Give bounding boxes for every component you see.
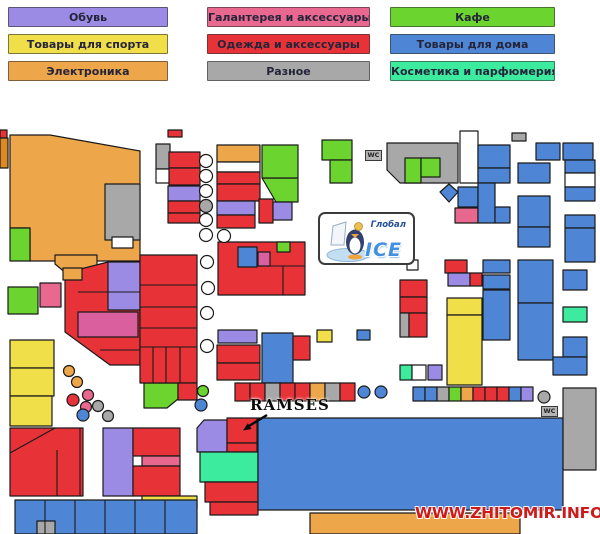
map-store-block (553, 357, 587, 375)
map-store-block (563, 143, 593, 160)
map-kiosk-circle (200, 155, 213, 168)
map-kiosk-circle (218, 230, 231, 243)
map-store-block (483, 275, 510, 289)
map-store-block (217, 201, 255, 215)
map-store-block (518, 260, 553, 303)
map-store-block (455, 208, 478, 223)
map-store-block (168, 130, 182, 137)
map-store-block (563, 337, 587, 357)
mall-logo: Глобал ICE (318, 212, 415, 265)
map-kiosk-circle (67, 394, 79, 406)
map-store-block (478, 183, 495, 223)
map-area (197, 420, 227, 452)
map-store-block (425, 387, 437, 401)
map-store-block (428, 365, 442, 380)
map-store-block (200, 452, 258, 482)
map-store-block (509, 387, 521, 401)
map-store-block (563, 388, 596, 470)
map-area (144, 383, 178, 408)
logo-title: Глобал (371, 220, 406, 230)
map-store-block (37, 521, 55, 534)
map-kiosk-circle (200, 229, 213, 242)
map-store-block (112, 237, 133, 248)
legend-item: Электроника (8, 61, 168, 81)
map-store-block (10, 228, 30, 261)
map-store-block (217, 215, 255, 228)
map-kiosk-circle (358, 386, 370, 398)
map-store-block (217, 162, 260, 172)
map-store-block (40, 283, 61, 307)
logo-subtitle: ICE (365, 239, 402, 261)
map-store-block (210, 502, 258, 515)
map-kiosk-circle (64, 366, 75, 377)
map-store-block (108, 262, 140, 310)
map-store-block (235, 383, 250, 401)
map-store-block (217, 184, 260, 201)
map-kiosk-circle (72, 377, 83, 388)
map-store-block (10, 428, 83, 496)
map-store-block (485, 387, 497, 401)
map-store-block (447, 315, 482, 385)
map-store-block (133, 428, 180, 456)
ramses-annotation: RAMSES (250, 396, 330, 414)
legend-item: Разное (207, 61, 370, 81)
map-store-block (563, 270, 587, 290)
map-store-block (142, 456, 180, 466)
map-store-block (140, 255, 197, 383)
map-store-block (478, 168, 510, 183)
map-store-block (217, 363, 260, 380)
map-store-block (518, 303, 553, 360)
map-store-block (168, 201, 200, 213)
map-store-block (449, 387, 461, 401)
map-store-block (322, 140, 352, 160)
map-store-block (409, 313, 427, 337)
map-store-block (10, 368, 54, 396)
map-store-block (238, 247, 257, 267)
map-store-block (413, 387, 425, 401)
map-store-block (156, 144, 170, 169)
map-kiosk-circle (198, 386, 209, 397)
map-store-block (565, 215, 595, 228)
map-store-block (412, 365, 426, 380)
map-store-block (10, 340, 54, 368)
map-store-block (218, 330, 257, 343)
map-kiosk-circle (77, 409, 89, 421)
map-store-block (563, 307, 587, 322)
map-store-block (340, 383, 355, 401)
map-store-block (258, 418, 563, 510)
legend-item: Одежда и аксессуары (207, 34, 370, 54)
map-store-block (460, 131, 478, 183)
map-kiosk-circle (103, 411, 114, 422)
map-store-block (448, 273, 470, 286)
map-kiosk-circle (195, 399, 207, 411)
map-store-block (103, 428, 133, 496)
map-kiosk-circle (538, 391, 550, 403)
legend-item: Товары для спорта (8, 34, 168, 54)
map-store-block (105, 184, 140, 240)
map-store-block (565, 187, 595, 201)
map-kiosk-circle (200, 214, 213, 227)
map-store-block (478, 145, 510, 168)
map-store-block (445, 260, 467, 273)
map-store-block (470, 273, 482, 286)
map-store-block (277, 242, 290, 252)
map-store-block (518, 163, 550, 183)
map-store-block (217, 172, 260, 184)
map-store-block (565, 173, 595, 187)
map-store-block (0, 130, 7, 138)
map-store-block (217, 145, 260, 162)
map-store-block (565, 160, 595, 173)
legend-item: Товары для дома (390, 34, 555, 54)
map-kiosk-circle (202, 282, 215, 295)
map-store-block (273, 202, 292, 220)
map-store-block (0, 138, 8, 168)
map-store-block (217, 345, 260, 363)
legend-item: Галантерея и аксессуары (207, 7, 370, 27)
map-store-block (227, 418, 257, 443)
legend-item: Обувь (8, 7, 168, 27)
map-kiosk-circle (83, 390, 94, 401)
map-store-block (133, 466, 180, 496)
map-store-block (405, 158, 421, 183)
legend: ОбувьГалантерея и аксессуарыКафеТовары д… (0, 0, 600, 95)
wc-label-bottom: WC (541, 406, 558, 417)
legend-item: Кафе (390, 7, 555, 27)
map-store-block (565, 228, 595, 262)
map-area (440, 184, 458, 202)
map-store-block (227, 443, 257, 452)
map-store-block (521, 387, 533, 401)
map-store-block (262, 333, 293, 383)
map-store-block (536, 143, 560, 160)
map-store-block (497, 387, 509, 401)
map-kiosk-circle (201, 340, 214, 353)
map-store-block (483, 260, 510, 273)
map-store-block (259, 199, 273, 223)
map-store-block (218, 242, 305, 295)
map-store-block (518, 196, 550, 227)
map-store-block (458, 187, 478, 207)
map-store-block (495, 207, 510, 223)
mall-directory-page: ОбувьГалантерея и аксессуарыКафеТовары д… (0, 0, 600, 534)
map-store-block (63, 268, 82, 280)
map-store-block (262, 145, 298, 178)
map-store-block (483, 290, 510, 340)
map-store-block (357, 330, 370, 340)
map-kiosk-circle (93, 401, 104, 412)
map-store-block (421, 158, 440, 177)
map-store-block (400, 365, 412, 380)
map-store-block (205, 482, 258, 502)
map-store-block (400, 313, 409, 337)
map-store-block (512, 133, 526, 141)
legend-item: Косметика и парфюмерия (390, 61, 555, 81)
map-store-block (169, 152, 200, 168)
map-store-block (8, 287, 38, 314)
map-store-block (518, 227, 550, 247)
map-store-block (169, 168, 200, 185)
map-store-block (447, 298, 482, 315)
map-store-block (258, 252, 270, 266)
map-kiosk-circle (201, 256, 214, 269)
map-store-block (400, 280, 427, 297)
map-store-block (78, 312, 138, 337)
map-store-block (437, 387, 449, 401)
map-store-block (178, 383, 197, 400)
map-store-block (330, 160, 352, 183)
map-kiosk-circle (201, 307, 214, 320)
map-store-block (168, 213, 200, 223)
map-store-block (156, 169, 170, 183)
map-kiosk-circle (375, 386, 387, 398)
map-store-block (168, 186, 200, 201)
map-store-block (293, 336, 310, 360)
map-store-block (461, 387, 473, 401)
map-store-block (400, 297, 427, 313)
map-store-block (10, 396, 52, 426)
map-kiosk-circle (200, 200, 213, 213)
wc-label-top: WC (365, 150, 382, 161)
map-kiosk-circle (200, 185, 213, 198)
watermark: WWW.ZHITOMIR.INFO (415, 504, 597, 522)
map-store-block (317, 330, 332, 342)
map-kiosk-circle (200, 170, 213, 183)
map-store-block (473, 387, 485, 401)
